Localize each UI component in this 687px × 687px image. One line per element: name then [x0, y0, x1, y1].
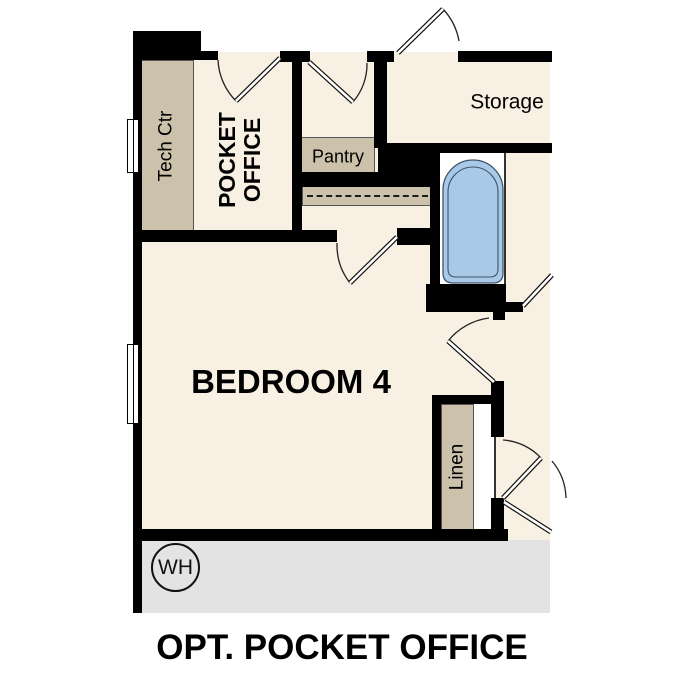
pocket-office-label-line1: POCKET — [215, 112, 240, 208]
window-mullion — [133, 120, 134, 172]
pocket-office-label: POCKET OFFICE — [215, 112, 265, 208]
wall-top-left-block — [133, 31, 201, 60]
window-upper — [127, 119, 139, 173]
tub-alcove-floor — [438, 153, 505, 288]
wall-linen-top — [432, 395, 497, 404]
water-heater-symbol: WH — [151, 543, 200, 592]
door-storage — [398, 9, 459, 53]
linen-label: Linen — [448, 444, 469, 491]
window-lower — [127, 344, 139, 424]
storage-label: Storage — [470, 92, 544, 115]
wall-bedroom-top — [133, 230, 337, 242]
wall-stub-lower — [491, 498, 504, 533]
wall-tub-left — [430, 153, 440, 288]
wall-above-counter — [300, 172, 440, 187]
wall-office-pantry — [292, 51, 302, 233]
wall-tub-bottom — [426, 284, 506, 312]
wall-bedroom-top-chunk — [397, 228, 440, 245]
tech-center-label: Tech Ctr — [157, 111, 178, 182]
desk-counter — [302, 186, 433, 206]
water-heater-label: WH — [158, 556, 193, 580]
garage-floor — [140, 540, 550, 613]
plan-title: OPT. POCKET OFFICE — [156, 628, 527, 668]
wall-top-a — [201, 51, 218, 60]
bedroom-label: BEDROOM 4 — [191, 364, 391, 400]
tub-alcove-edge — [504, 153, 506, 288]
pantry-label: Pantry — [312, 147, 364, 166]
counter-dashed-line — [307, 195, 428, 197]
pocket-office-label-line2: OFFICE — [240, 112, 265, 208]
wall-tub-bottom-step — [493, 310, 505, 320]
wall-bottom — [133, 529, 508, 541]
floor-plan: WH Tech Ctr POCKET OFFICE Pantry Storage… — [0, 0, 687, 687]
wall-pantry-storage — [374, 51, 387, 148]
wall-stub-upper — [491, 381, 504, 437]
wall-top-d — [458, 51, 552, 62]
wall-linen-left — [432, 395, 441, 531]
window-mullion — [133, 345, 134, 423]
